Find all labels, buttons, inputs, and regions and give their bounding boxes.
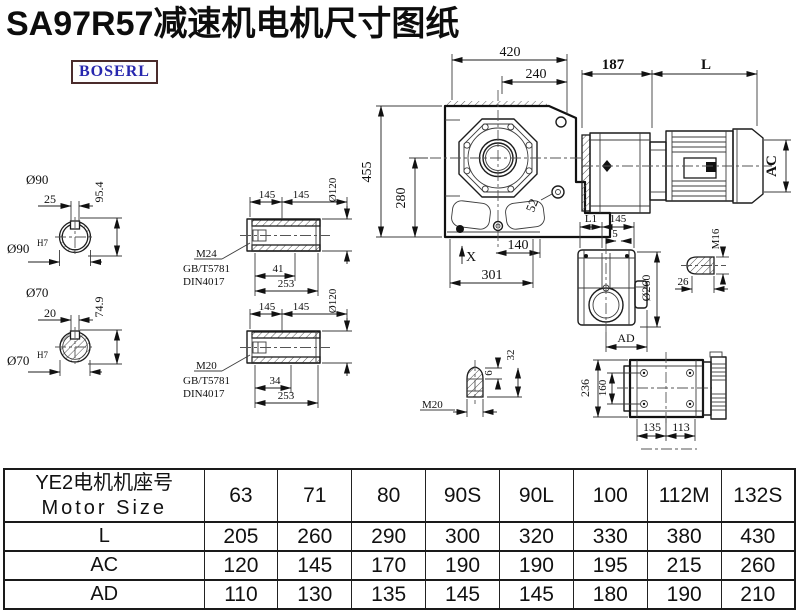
motor-side-view: 187 L AC [582,57,791,213]
header-en: Motor Size [5,496,204,521]
dim-label: 187 [602,57,625,73]
header-cn: YE2电机机座号 [5,471,204,496]
shaft-end-horizontal: M16 26 [675,228,729,293]
dim-label: 420 [500,45,521,60]
col-header: 132S [721,469,795,522]
table-header-motor-size: YE2电机机座号 Motor Size [4,469,204,522]
table-cell: 110 [204,580,278,609]
dim-label: Ø70 [7,353,29,368]
col-header: 90S [426,469,500,522]
table-cell: 260 [721,551,795,580]
col-header: 112M [647,469,721,522]
dim-label: 253 [278,278,295,290]
dim-label: Ø120 [327,288,339,313]
dim-label: 240 [526,67,547,82]
gearbox-side-view: L1 145 5 Ø260 AD [578,213,661,352]
dim-label: 20 [44,306,56,320]
dim-label: 236 [578,379,592,397]
standard-label: GB/T5781 [183,263,230,275]
dim-label: 5 [612,228,618,240]
table-cell: 195 [573,551,647,580]
table-cell: 210 [721,580,795,609]
dim-label: L1 [585,213,597,225]
standard-label: DIN4017 [183,388,225,400]
table-cell: 145 [278,551,352,580]
thread-label: M20 [196,360,217,372]
table-cell: 380 [647,522,721,551]
table-cell: 290 [352,522,426,551]
dim-label: 145 [259,189,276,201]
table-cell: 130 [278,580,352,609]
dim-tolerance: H7 [37,350,48,360]
dim-label: 145 [259,301,276,313]
table-cell: 190 [500,551,574,580]
dim-label: 41 [273,263,284,275]
table-cell: 145 [426,580,500,609]
dim-label: 95.4 [92,182,106,203]
dim-label: 145 [293,301,310,313]
row-label: AD [4,580,204,609]
row-label: AC [4,551,204,580]
dim-label: 140 [508,238,529,253]
shaft-section-90: Ø90 25 95.4 Ø90 H7 [7,172,122,266]
dim-label: AC [764,155,780,177]
dim-label: 34 [270,375,282,387]
thread-label: M20 [422,399,443,411]
standard-label: GB/T5781 [183,375,230,387]
hollow-shaft-lower: 145 145 Ø120 34 253 M20 GB/T5781 DIN4017 [183,288,352,408]
shaft-end-vertical: M20 6 32 [420,350,522,418]
dim-label: 135 [643,420,661,434]
standard-label: DIN4017 [183,276,225,288]
table-cell: 180 [573,580,647,609]
table-cell: 300 [426,522,500,551]
dim-label: Ø260 [639,275,653,302]
table-cell: 320 [500,522,574,551]
motor-size-table: YE2电机机座号 Motor Size 63 71 80 90S 90L 100… [3,468,796,610]
table-cell: 190 [647,580,721,609]
x-mark-label: X [466,250,476,265]
table-cell: 120 [204,551,278,580]
table-cell: 205 [204,522,278,551]
col-header: 80 [352,469,426,522]
dim-label: Ø90 [26,172,48,187]
table-header-row: YE2电机机座号 Motor Size 63 71 80 90S 90L 100… [4,469,795,522]
dim-label: 113 [672,420,690,434]
dim-label: 145 [610,213,627,225]
dim-tolerance: H7 [37,238,48,248]
dim-label: Ø70 [26,285,48,300]
col-header: 71 [278,469,352,522]
table-cell: 170 [352,551,426,580]
dim-label: L [701,57,711,73]
table-row-L: L 205 260 290 300 320 330 380 430 [4,522,795,551]
thread-label: M24 [196,248,217,260]
dim-label: 32 [505,350,517,361]
table-cell: 135 [352,580,426,609]
nameplate-mark [706,162,716,172]
table-row-AC: AC 120 145 170 190 190 195 215 260 [4,551,795,580]
dim-label: 26 [678,276,690,288]
dim-label: 455 [360,162,375,183]
dim-label: 145 [293,189,310,201]
table-row-AD: AD 110 130 135 145 145 180 190 210 [4,580,795,609]
drawing-sheet: SA97R57减速机电机尺寸图纸 BOSERL Ø90 25 [0,0,800,613]
dim-label: Ø90 [7,241,29,256]
col-header: 63 [204,469,278,522]
col-header: 90L [500,469,574,522]
hollow-shaft-upper: 145 145 Ø120 41 253 M24 GB/T5781 DIN4017 [183,177,352,296]
dim-label: 6 [483,370,495,376]
table-cell: 260 [278,522,352,551]
table-cell: 215 [647,551,721,580]
dim-label: 52 [522,196,541,214]
gearbox-top-view: 236 160 135 113 [578,352,726,449]
drain-plug [456,225,464,233]
gearbox-front-view: 52 X 420 240 455 280 140 301 [360,45,610,288]
dim-label: 301 [482,268,503,283]
shaft-section-70: Ø70 20 74.9 Ø70 H7 [7,285,122,376]
table-cell: 145 [500,580,574,609]
dim-label: 280 [394,188,409,209]
dim-label: 74.9 [92,297,106,318]
table-cell: 190 [426,551,500,580]
thread-label: M16 [710,228,722,249]
table-cell: 430 [721,522,795,551]
row-label: L [4,522,204,551]
table-cell: 330 [573,522,647,551]
dim-label: Ø120 [327,177,339,202]
col-header: 100 [573,469,647,522]
technical-drawing: Ø90 25 95.4 Ø90 H7 Ø70 20 74.9 [0,0,800,468]
dim-label: 25 [44,192,56,206]
dim-label: 253 [278,390,295,402]
dim-label: AD [617,331,635,345]
dim-label: 160 [597,379,609,396]
